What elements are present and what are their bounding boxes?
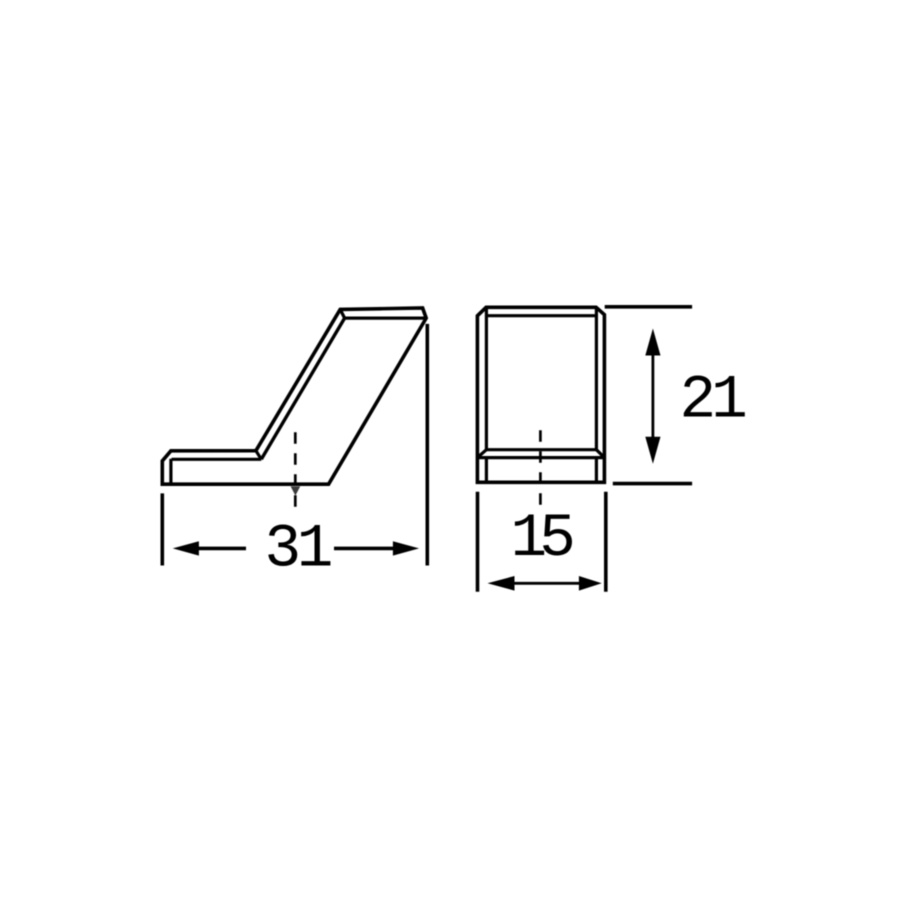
svg-text:5: 5	[539, 505, 576, 574]
svg-text:1: 1	[711, 366, 748, 435]
svg-text:3: 3	[264, 515, 301, 584]
svg-text:1: 1	[297, 515, 334, 584]
